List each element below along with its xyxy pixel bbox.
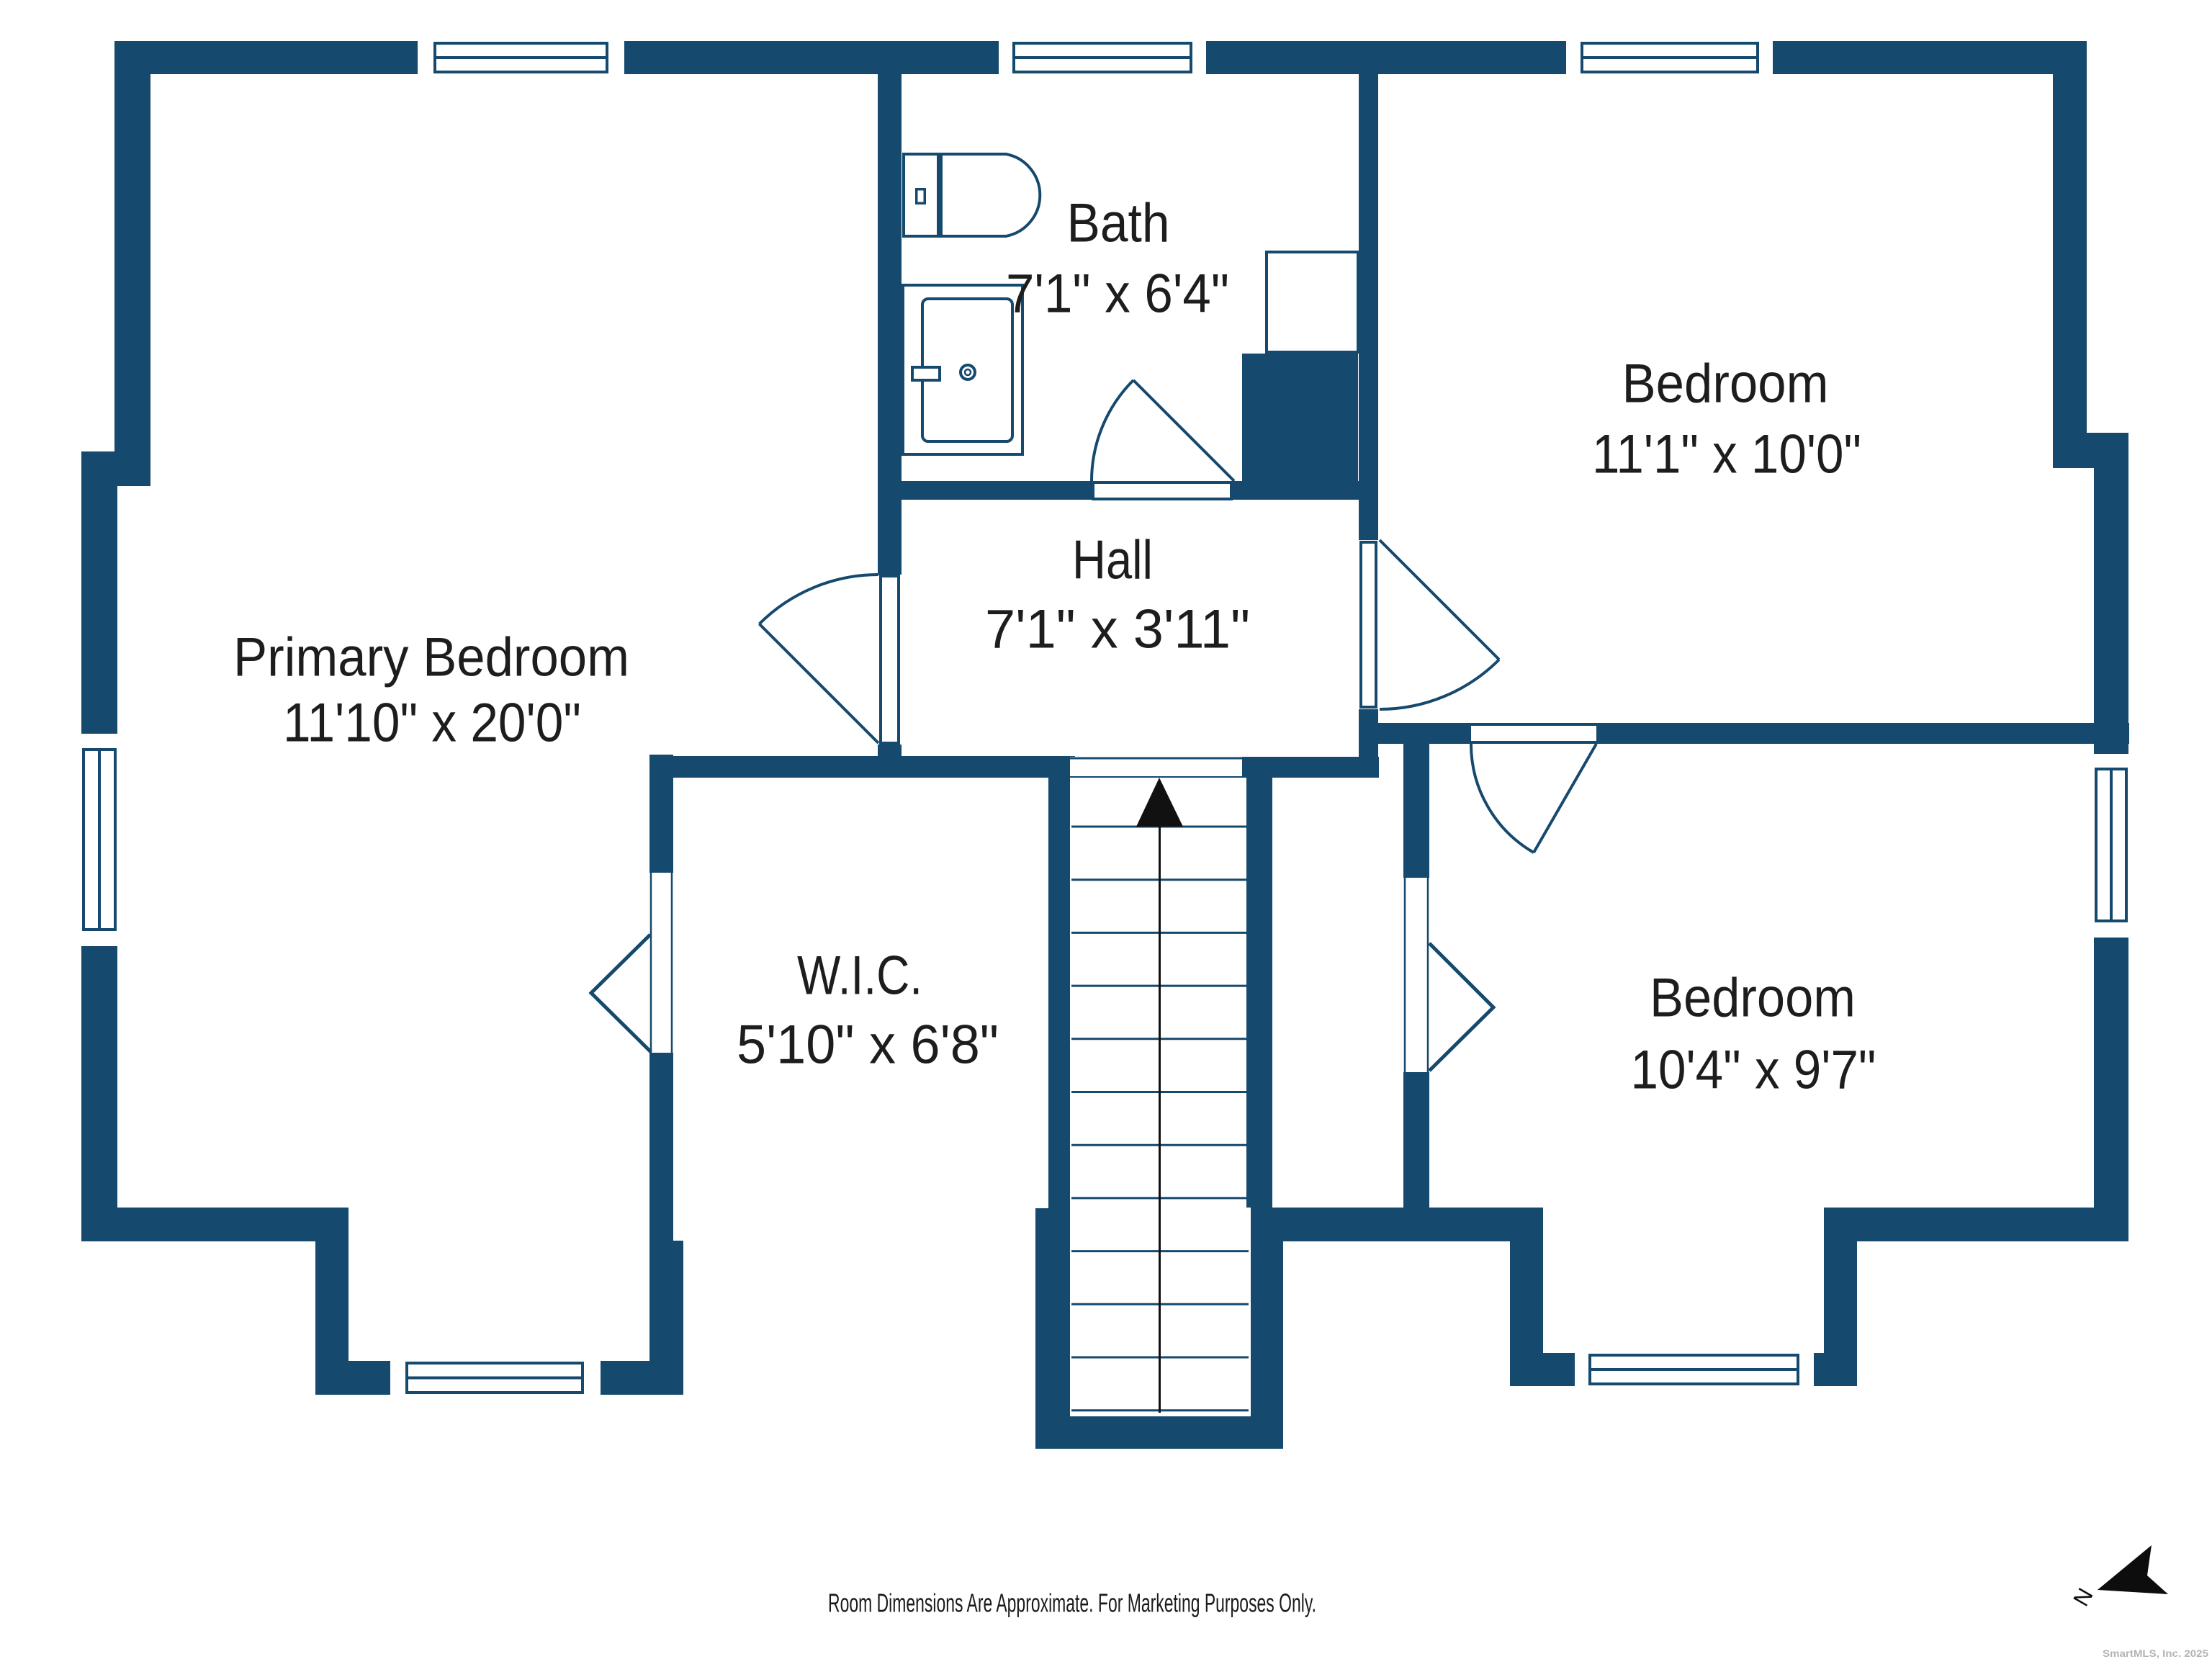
svg-text:5'10" x 6'8": 5'10" x 6'8"	[737, 1015, 999, 1076]
svg-text:Bath: Bath	[1067, 193, 1170, 254]
svg-text:SmartMLS, Inc. 2025: SmartMLS, Inc. 2025	[2103, 1647, 2208, 1659]
svg-text:7'1" x 6'4": 7'1" x 6'4"	[1006, 264, 1229, 325]
svg-text:11'10" x 20'0": 11'10" x 20'0"	[283, 693, 581, 754]
svg-text:Bedroom: Bedroom	[1650, 968, 1856, 1029]
svg-text:W.I.C.: W.I.C.	[797, 945, 922, 1007]
svg-text:Room Dimensions Are Approximat: Room Dimensions Are Approximate. For Mar…	[828, 1588, 1316, 1618]
svg-text:Bedroom: Bedroom	[1622, 354, 1829, 415]
svg-text:Primary Bedroom: Primary Bedroom	[233, 627, 629, 688]
svg-text:Hall: Hall	[1072, 530, 1153, 591]
svg-text:10'4" x 9'7": 10'4" x 9'7"	[1631, 1040, 1876, 1101]
svg-text:7'1" x 3'11": 7'1" x 3'11"	[985, 599, 1250, 660]
svg-text:11'1" x 10'0": 11'1" x 10'0"	[1592, 424, 1861, 485]
